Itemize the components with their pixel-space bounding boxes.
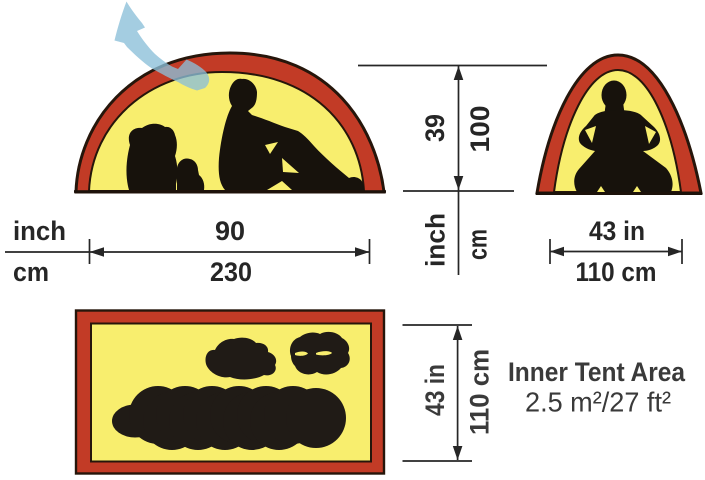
svg-text:inch: inch (13, 216, 66, 246)
svg-text:100: 100 (465, 106, 495, 153)
svg-text:cm: cm (13, 257, 49, 287)
svg-text:110 cm: 110 cm (576, 257, 657, 287)
svg-text:43 in: 43 in (589, 216, 645, 246)
svg-text:2.5 m²/27 ft²: 2.5 m²/27 ft² (525, 387, 671, 418)
svg-text:90: 90 (215, 216, 245, 246)
svg-text:inch: inch (421, 213, 451, 267)
svg-text:43 in: 43 in (420, 364, 450, 416)
svg-text:Inner Tent Area: Inner Tent Area (508, 357, 686, 387)
svg-text:110 cm: 110 cm (465, 349, 495, 435)
svg-text:230: 230 (210, 257, 252, 287)
svg-text:39: 39 (420, 114, 450, 142)
svg-text:cm: cm (463, 229, 493, 260)
